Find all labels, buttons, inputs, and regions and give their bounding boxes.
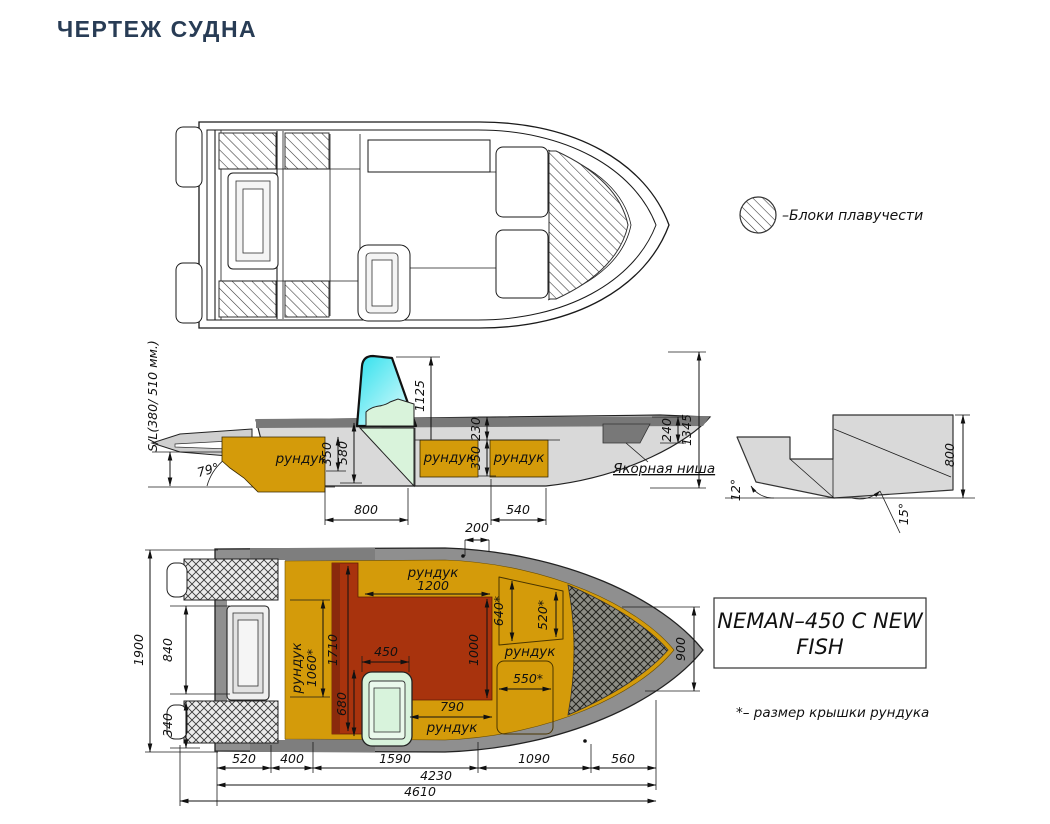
stern-seat (228, 173, 278, 269)
svg-text:580: 580 (335, 441, 350, 465)
anchor-niche-label: Якорная ниша (612, 461, 715, 477)
svg-text:540: 540 (506, 502, 530, 517)
svg-text:4230: 4230 (420, 768, 452, 783)
svg-text:550*: 550* (513, 671, 543, 686)
svg-text:680: 680 (334, 692, 349, 716)
plan-view: рундук 1200 рундук 1060* 1710 1000 450 (131, 520, 703, 806)
bow-seat-bottom (496, 230, 548, 298)
footnote: *– размер крышки рундука (736, 705, 929, 721)
svg-text:12°: 12° (728, 479, 743, 501)
svg-text:350: 350 (319, 442, 334, 466)
transom-height-label: S/L(380/ 510 мм.) (145, 340, 160, 452)
svg-text:400: 400 (280, 751, 304, 766)
driver-seat-top-view (358, 245, 410, 321)
svg-text:840: 840 (160, 638, 175, 662)
ship-drawing-canvas: –Блоки плавучести S/L(380/ 510 мм.) 79° … (0, 0, 1050, 824)
svg-text:350: 350 (468, 446, 483, 470)
transom-view: 12° 15° 800 (725, 415, 975, 533)
motor-bracket-top (176, 127, 202, 187)
svg-text:640*: 640* (491, 596, 506, 626)
angle-79-label: 79° (195, 460, 220, 480)
model-name-line2: FISH (796, 635, 844, 659)
runduk-left-label: рундук (289, 642, 305, 695)
svg-text:450: 450 (374, 644, 398, 659)
runduk-bottom-label: рундук (426, 720, 479, 736)
transom-section (737, 415, 953, 498)
flotation-block (285, 133, 329, 169)
svg-text:520: 520 (232, 751, 256, 766)
svg-text:1345: 1345 (679, 414, 694, 446)
svg-text:230: 230 (468, 417, 483, 441)
svg-text:1000: 1000 (466, 634, 481, 666)
svg-text:1060*: 1060* (304, 649, 319, 687)
plan-flotation-stern-top (184, 559, 278, 600)
svg-text:800: 800 (354, 502, 378, 517)
svg-text:340: 340 (160, 713, 175, 737)
model-name-line1: NEMAN–450 C NEW (717, 609, 924, 633)
svg-text:800: 800 (942, 443, 957, 467)
angle-15: 15° (852, 491, 911, 533)
plan-flotation-stern-bottom (184, 701, 278, 743)
legend: –Блоки плавучести (740, 197, 923, 233)
console-top-view (368, 140, 490, 172)
svg-text:240: 240 (659, 418, 674, 442)
svg-text:15°: 15° (896, 503, 911, 525)
svg-text:1090: 1090 (518, 751, 550, 766)
flotation-block (219, 281, 276, 317)
motor-well (227, 606, 269, 700)
dim-800-side: 800 (325, 488, 408, 525)
svg-text:200: 200 (465, 520, 489, 535)
motor-bracket-bottom (176, 263, 202, 323)
model-box: NEMAN–450 C NEW FISH (714, 598, 926, 668)
runduk-fwd-label: рундук (493, 450, 546, 466)
svg-text:900: 900 (673, 637, 688, 661)
svg-text:790: 790 (440, 699, 464, 714)
svg-text:560: 560 (611, 751, 635, 766)
flotation-legend-icon (740, 197, 776, 233)
driver-seat-plan (362, 672, 412, 746)
svg-text:1590: 1590 (379, 751, 411, 766)
svg-text:520*: 520* (535, 600, 550, 630)
runduk-bow-label: рундук (504, 644, 557, 660)
svg-text:4610: 4610 (404, 784, 436, 799)
svg-text:1125: 1125 (412, 380, 427, 412)
svg-text:1900: 1900 (131, 634, 146, 666)
svg-text:1710: 1710 (325, 634, 340, 666)
svg-text:1200: 1200 (417, 578, 449, 593)
flotation-block (285, 281, 329, 317)
side-view: S/L(380/ 510 мм.) 79° рундук 350 580 112… (145, 340, 715, 525)
flotation-block (219, 133, 276, 169)
bow-seat-top (496, 147, 548, 217)
top-view (176, 122, 669, 328)
legend-label: –Блоки плавучести (782, 208, 923, 224)
